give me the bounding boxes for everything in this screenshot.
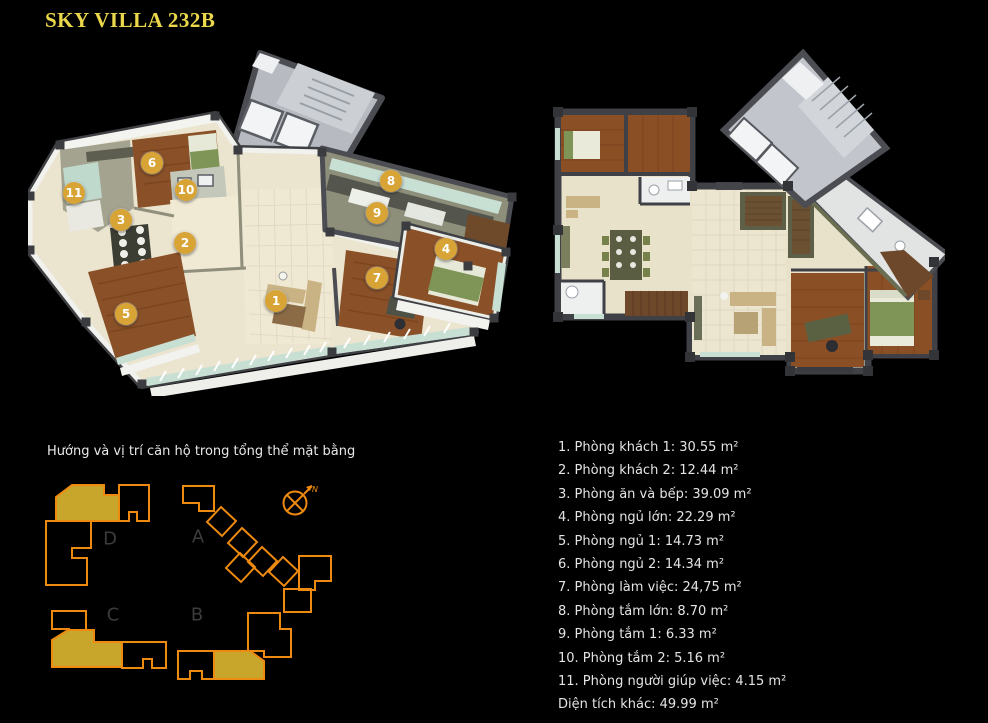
floor-plan-2d-drawing	[545, 45, 945, 400]
room-list: 1. Phòng khách 1: 30.55 m²2. Phòng khách…	[558, 441, 786, 722]
building-d-outline	[46, 485, 149, 585]
room-marker-9: 9	[366, 202, 388, 224]
room-marker-3: 3	[110, 209, 132, 231]
bedrooms-2d	[558, 115, 692, 174]
room-marker-5: 5	[115, 303, 137, 325]
room-list-item: 11. Phòng người giúp việc: 4.15 m²	[558, 675, 786, 689]
compass-icon	[284, 485, 313, 515]
floor-plan-2d	[545, 45, 945, 400]
building-label-D: D	[103, 529, 117, 550]
room-marker-8: 8	[380, 170, 402, 192]
room-list-item: 2. Phòng khách 2: 12.44 m²	[558, 464, 786, 478]
building-label-A: A	[192, 527, 204, 548]
room-marker-1: 1	[265, 290, 287, 312]
site-plan-caption: Hướng và vị trí căn hộ trong tổng thể mặ…	[47, 444, 355, 459]
floor-plan-3d: 1234567891011	[28, 40, 520, 396]
room-list-item: 8. Phòng tắm lớn: 8.70 m²	[558, 605, 786, 619]
room-list-item: 6. Phòng ngủ 2: 14.34 m²	[558, 558, 786, 572]
room-list-item: 1. Phòng khách 1: 30.55 m²	[558, 441, 786, 455]
room-marker-2: 2	[174, 232, 196, 254]
room-list-item: 5. Phòng ngủ 1: 14.73 m²	[558, 535, 786, 549]
building-label-B: B	[191, 605, 203, 626]
page: SKY VILLA 232B	[0, 0, 988, 723]
page-title: SKY VILLA 232B	[45, 8, 215, 33]
room-list-footer: Diện tích khác: 49.99 m²	[558, 698, 786, 712]
room-list-item: 3. Phòng ăn và bếp: 39.09 m²	[558, 488, 786, 502]
room-marker-4: 4	[435, 238, 457, 260]
compass-north-label: N	[312, 485, 318, 494]
site-plan-drawing: N	[30, 470, 335, 720]
bath-2d	[640, 177, 690, 204]
room-marker-7: 7	[366, 267, 388, 289]
room-list-item: 9. Phòng tắm 1: 6.33 m²	[558, 628, 786, 642]
room-marker-11: 11	[63, 182, 85, 204]
room-marker-10: 10	[175, 179, 197, 201]
building-label-C: C	[107, 605, 120, 626]
room-list-item: 10. Phòng tắm 2: 5.16 m²	[558, 652, 786, 666]
site-plan: N DACB	[30, 470, 335, 720]
room-marker-6: 6	[141, 152, 163, 174]
room-list-item: 7. Phòng làm việc: 24,75 m²	[558, 581, 786, 595]
room-list-item: 4. Phòng ngủ lớn: 22.29 m²	[558, 511, 786, 525]
core-2d	[724, 53, 886, 205]
floor-plan-3d-drawing	[28, 40, 520, 396]
building-a-outline	[183, 486, 331, 612]
